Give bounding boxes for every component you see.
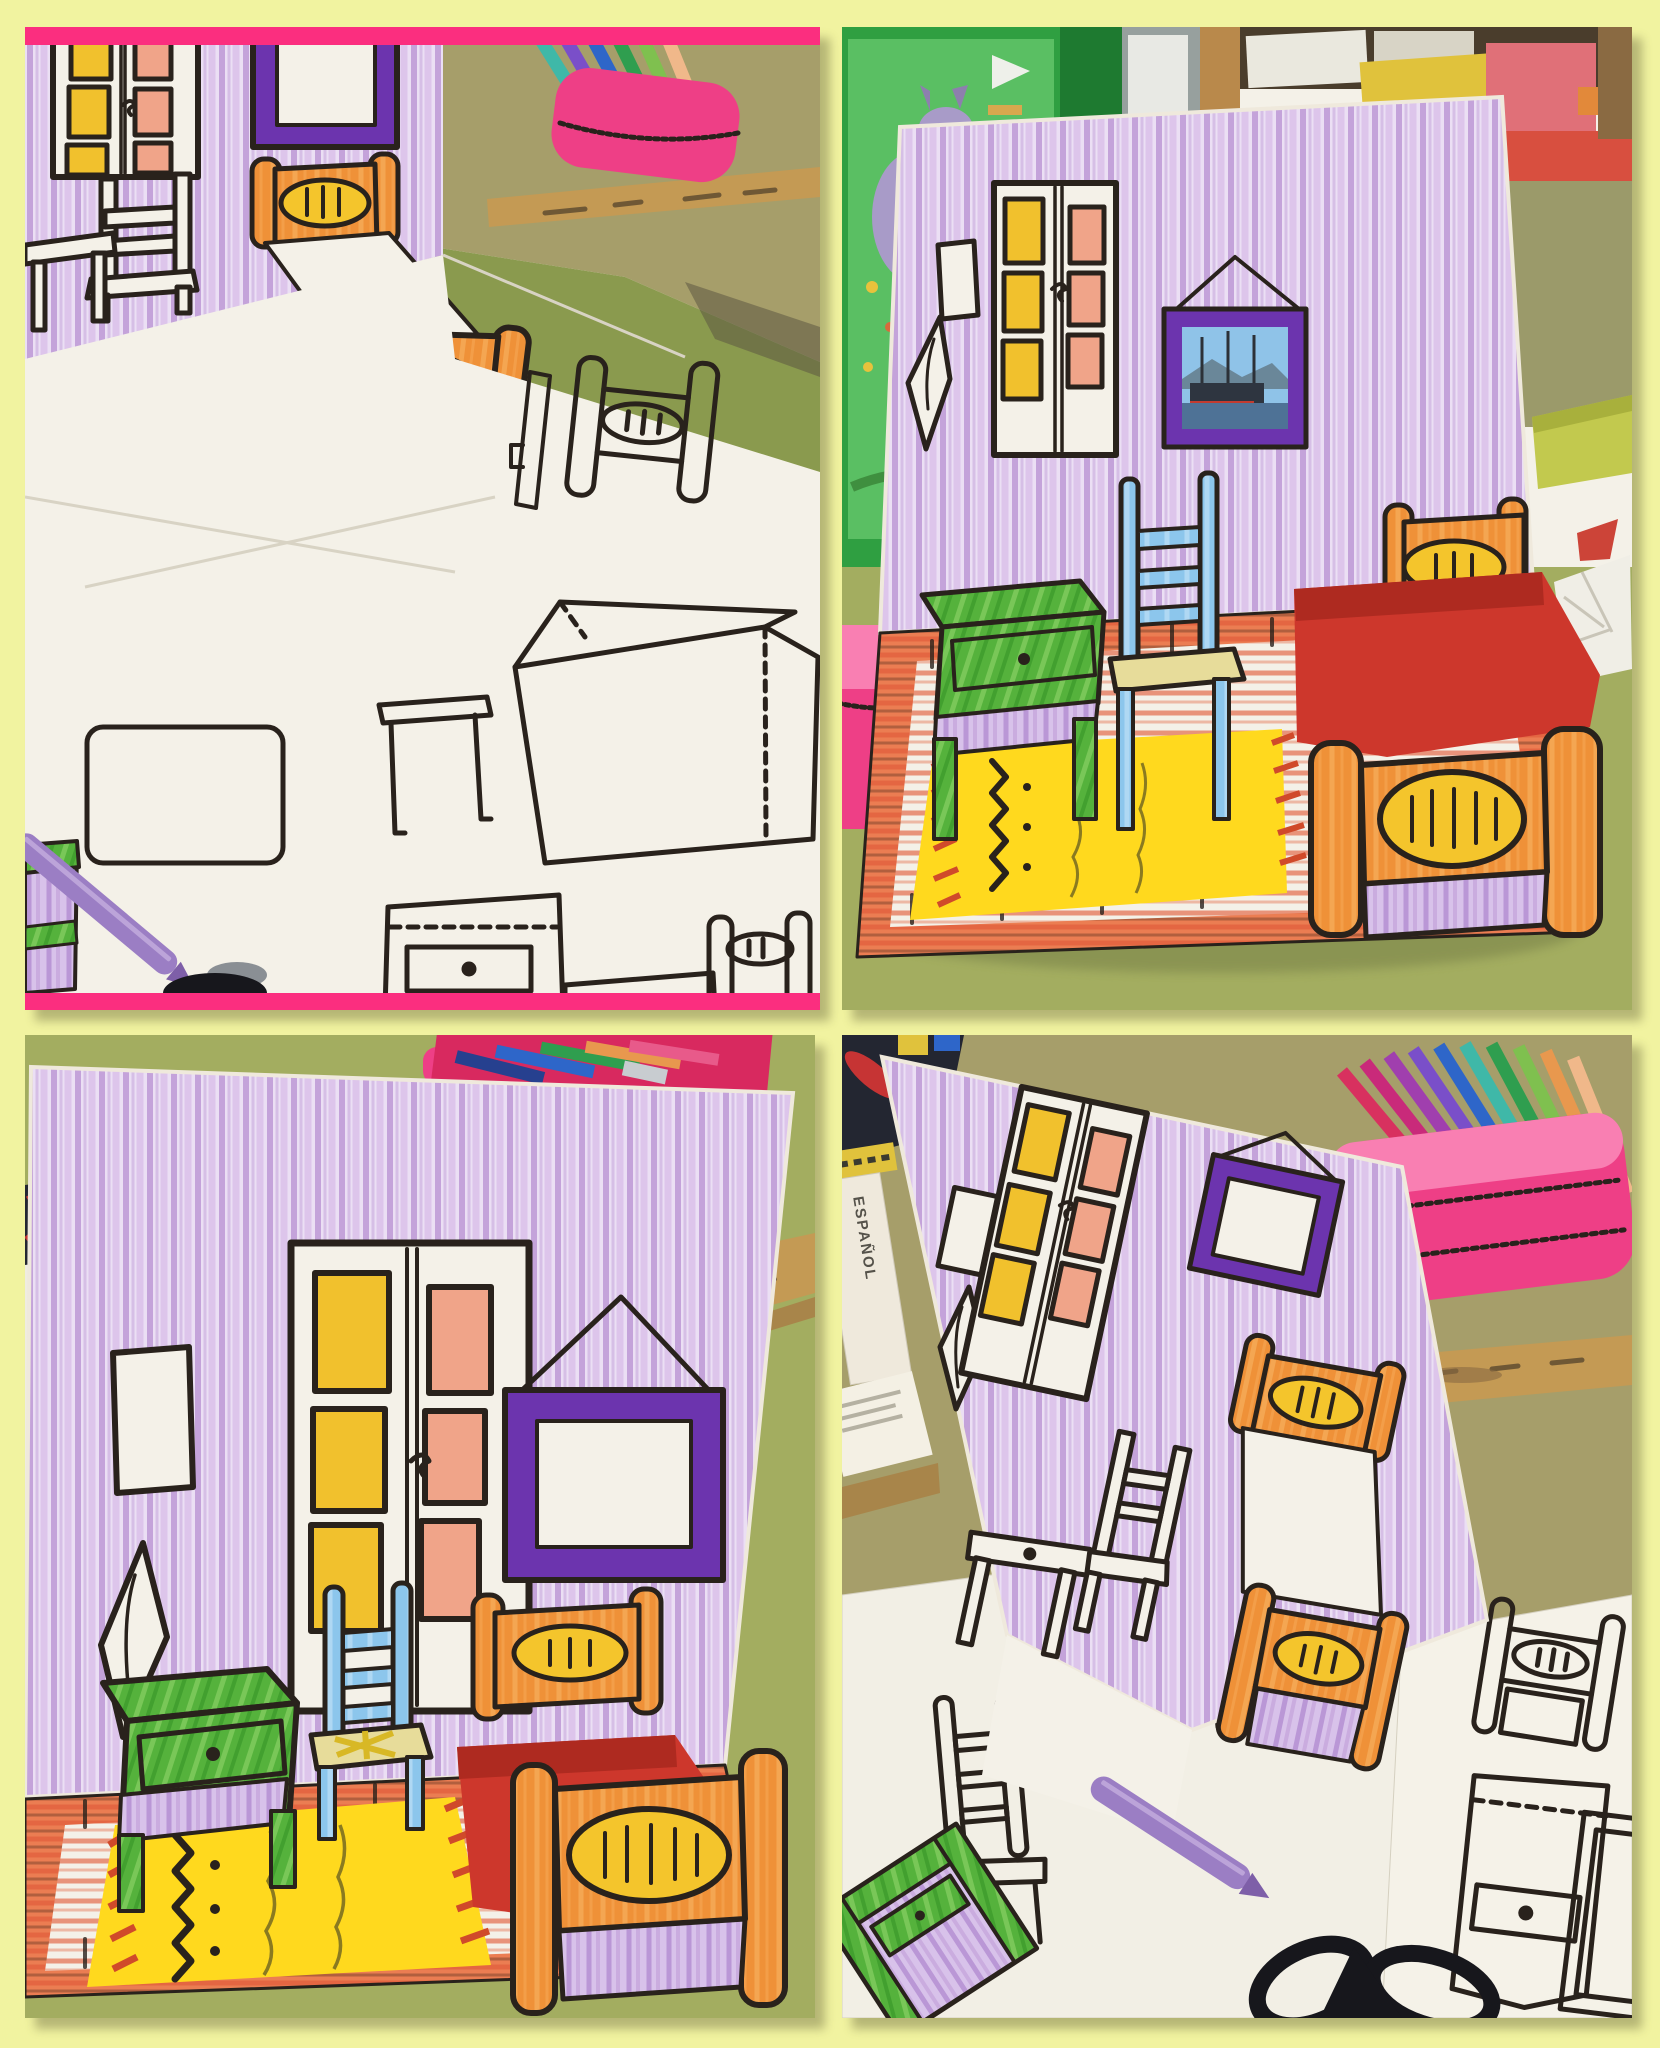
photo-bottom-left (25, 1029, 815, 2018)
pink-strip-top (25, 27, 820, 45)
photo-top-right (798, 27, 1632, 1010)
wardrobe (994, 183, 1116, 455)
ship-photo (1182, 327, 1288, 429)
window (938, 241, 978, 319)
pink-strip-bottom (25, 993, 820, 1010)
rug (910, 729, 1306, 920)
bed-footboard (513, 1751, 785, 2013)
popup-card (25, 1067, 793, 2013)
popup-card (857, 97, 1600, 973)
collage-image: ESPAÑOL (0, 0, 1660, 2048)
window (113, 1347, 193, 1493)
bed-footboard (1311, 729, 1600, 937)
collage-svg: ESPAÑOL (0, 0, 1660, 2048)
photo-top-left (9, 17, 820, 1013)
photo-bottom-right: ESPAÑOL (814, 1035, 1660, 2042)
